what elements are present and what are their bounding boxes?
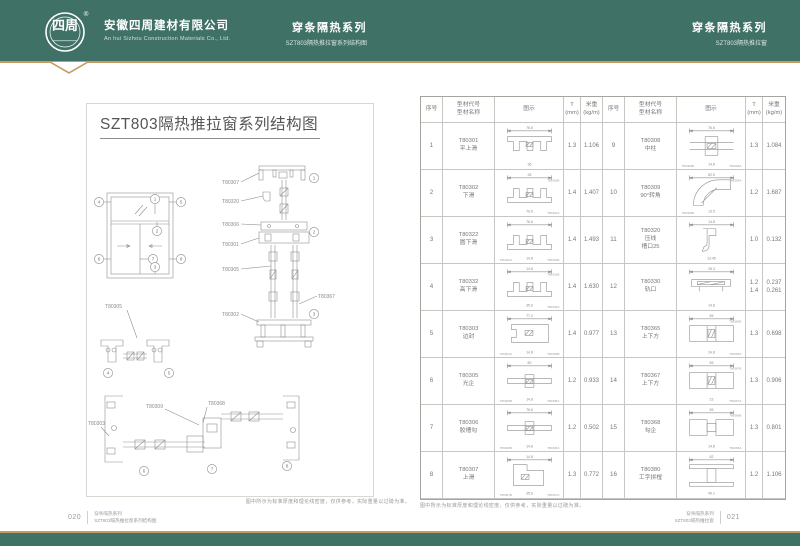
profile-code: T80305 (459, 373, 479, 381)
svg-text:T80302B: T80302B (547, 179, 559, 183)
svg-text:T80308A: T80308A (729, 164, 741, 168)
profile-name: 平上滑 (460, 146, 477, 154)
weight-cell: 0.906 (763, 358, 785, 405)
profile-label: T80307 (222, 180, 239, 186)
seq-cell: 10 (603, 170, 625, 217)
footer-caption-right: 穿条隔热系列 SZT803隔热推拉窗 (675, 511, 714, 525)
svg-text:T80303B: T80303B (547, 352, 559, 356)
svg-text:T80367A: T80367A (729, 399, 741, 403)
column-header: 型材代号 型材名称 (443, 97, 495, 123)
column-header: 序号 (603, 97, 625, 123)
svg-text:45.1: 45.1 (708, 492, 715, 496)
profile-label: T80305 (222, 267, 239, 273)
thickness-cell: 1.3 (564, 123, 581, 170)
profile-name: 上下方 (642, 334, 659, 342)
profile-code: T80380 (641, 467, 661, 475)
svg-text:35.6: 35.6 (526, 304, 533, 308)
gold-divider-top (0, 61, 800, 63)
svg-text:22: 22 (709, 398, 713, 402)
profile-code-name: T80367上下方 (625, 358, 677, 405)
thickness-cell: 1.0 (746, 217, 763, 264)
svg-text:14.8: 14.8 (526, 267, 533, 271)
header-notch-ornament (50, 62, 88, 75)
seq-cell: 6 (421, 358, 443, 405)
weight-cell: 1.084 (763, 123, 785, 170)
thickness-cell: 1.4 (564, 311, 581, 358)
profile-sketch: 77.214.8T80303AT80303B (495, 311, 564, 357)
thickness-cell: 1.3 (746, 358, 763, 405)
svg-text:65: 65 (709, 361, 713, 365)
sketch-cell: 28.314.8 (677, 264, 746, 311)
profile-label: T80309 (146, 404, 163, 410)
svg-text:77.2: 77.2 (526, 314, 533, 318)
profile-code: T80301 (459, 138, 479, 146)
column-header: 型材代号 型材名称 (625, 97, 677, 123)
seq-cell: 3 (421, 217, 443, 264)
svg-text:T80367B: T80367B (729, 367, 741, 371)
profile-code-name: T80380工字拼樘 (625, 452, 677, 499)
svg-text:35.6: 35.6 (526, 492, 533, 496)
section-marker: 6 (139, 466, 148, 475)
svg-text:65: 65 (709, 314, 713, 318)
profile-label: T80302 (222, 312, 239, 318)
svg-text:T80302A: T80302A (547, 211, 559, 215)
svg-text:55: 55 (709, 408, 713, 412)
profile-code-name: T8030990°转角 (625, 170, 677, 217)
svg-text:76.6: 76.6 (708, 126, 715, 130)
profile-name: 工字拼樘 (639, 475, 662, 483)
disclaimer-note-right: 图中所示为标准厚度和理论线密度，仅供参考，实际重量以过磅为准。 (420, 502, 584, 509)
section-marker: 3 (150, 262, 159, 274)
sketch-cell: 82.513.5T80309AT80309B (677, 170, 746, 217)
profile-code: T80368 (641, 420, 661, 428)
seq-cell: 14 (603, 358, 625, 405)
profile-sketch: 8245.1 (677, 452, 746, 498)
section-marker: 2 (309, 227, 318, 236)
thickness-cell: 1.3 (746, 123, 763, 170)
profile-code-name: T80365上下方 (625, 311, 677, 358)
svg-text:24.8: 24.8 (708, 351, 715, 355)
section-marker: 1 (309, 173, 318, 182)
header-band: 四周 ——— ® 安徽四周建材有限公司 An hui Sizhou Constr… (0, 0, 800, 61)
section-marker: 5 (169, 197, 186, 206)
profile-code: T80320 (641, 228, 661, 236)
svg-text:14.8: 14.8 (708, 304, 715, 308)
svg-text:T80365B: T80365B (729, 320, 741, 324)
svg-text:T80332A: T80332A (547, 305, 559, 309)
logo-text: 四周 (52, 18, 78, 33)
elevation-view: 4 1 5 2 6 7 8 3 (94, 193, 185, 278)
sketch-cell: 14.835.6T80307BT80307A (495, 452, 564, 499)
sketch-cell: 5514.8T80368BT80368A (677, 405, 746, 452)
svg-text:T80306B: T80306B (499, 446, 511, 450)
profile-sketch: 6524.8T80365BT80365A (677, 311, 746, 357)
footer-caption-left: 穿条隔热系列 SZT803隔热推拉窗系列结构图 (94, 511, 156, 525)
company-logo-icon: 四周 ——— ® (42, 6, 92, 56)
thickness-cell: 1.4 (564, 170, 581, 217)
series-subtitle: SZT803隔热推拉窗 (692, 38, 767, 47)
profile-code-name: T80368勾企 (625, 405, 677, 452)
svg-text:T80303A: T80303A (499, 352, 511, 356)
profile-code: T80309 (641, 185, 661, 193)
sketch-cell: 76.614.8T80308BT80308A (677, 123, 746, 170)
header-series-right-page: 穿条隔热系列 SZT803隔热推拉窗 (692, 19, 767, 47)
profile-code: T80308 (641, 138, 661, 146)
profile-sketch: 82.513.5T80309AT80309B (677, 170, 746, 216)
profile-label: T80303 (88, 421, 105, 427)
footer-series: 穿条隔热系列 (675, 511, 714, 518)
page-number-left: 020 (68, 514, 81, 521)
column-header: 米重 (kg/m) (581, 97, 603, 123)
structure-diagram-panel: SZT803隔热推拉窗系列结构图 4 1 5 2 6 7 8 3 (86, 103, 374, 497)
profile-sketch: 76.614.8T80308BT80308A (677, 123, 746, 169)
page-title: SZT803隔热推拉窗系列结构图 (100, 112, 320, 139)
section-marker: 6 (94, 254, 111, 263)
profile-code-name: T80305光企 (443, 358, 495, 405)
section-marker: 4 (103, 368, 112, 377)
thickness-cell: 1.4 (564, 217, 581, 264)
section-marker: 5 (164, 368, 173, 377)
page-number-right: 021 (727, 514, 740, 521)
footer-divider (87, 511, 88, 524)
svg-text:T80305A: T80305A (547, 399, 559, 403)
weight-cell: 0.933 (581, 358, 603, 405)
registered-mark: ® (84, 10, 89, 18)
series-title: 穿条隔热系列 (286, 19, 367, 35)
thickness-cell: 1.3 (746, 311, 763, 358)
footer-right: 穿条隔热系列 SZT803隔热推拉窗 021 (675, 511, 741, 525)
logo-ornament: ——— (53, 36, 77, 45)
profile-code-name: T80306胶槽勾 (443, 405, 495, 452)
svg-text:76.6: 76.6 (526, 408, 533, 412)
profile-name: 胶槽勾 (460, 428, 477, 436)
svg-text:T80332B: T80332B (547, 273, 559, 277)
seq-cell: 12 (603, 264, 625, 311)
svg-text:14.8: 14.8 (526, 455, 533, 459)
column-header: 米重 (kg/m) (763, 97, 785, 123)
svg-text:T80308B: T80308B (681, 164, 693, 168)
seq-cell: 16 (603, 452, 625, 499)
profile-sketch: 2870.6T80302BT80302A (495, 170, 564, 216)
profile-label: T80306 (222, 222, 239, 228)
svg-text:76.6: 76.6 (526, 220, 533, 224)
svg-text:2: 2 (156, 229, 159, 234)
sketch-cell: 14.813.45 (677, 217, 746, 264)
svg-text:8: 8 (180, 257, 183, 262)
svg-text:T80305B: T80305B (499, 399, 511, 403)
seq-cell: 2 (421, 170, 443, 217)
column-header: 图示 (495, 97, 564, 123)
column-header: T (mm) (746, 97, 763, 123)
company-name-en: An hui Sizhou Construction Materials Co.… (104, 36, 230, 42)
svg-text:80: 80 (527, 361, 531, 365)
profile-code-name: T80330轨口 (625, 264, 677, 311)
weight-cell: 0.237 0.261 (763, 264, 785, 311)
weight-cell: 1.493 (581, 217, 603, 264)
weight-cell: 0.977 (581, 311, 603, 358)
svg-text:1: 1 (313, 176, 316, 181)
footer-band (0, 533, 800, 546)
svg-text:3: 3 (313, 312, 316, 317)
svg-text:T80368B: T80368B (729, 414, 741, 418)
profile-name: 高下滑 (460, 287, 477, 295)
profile-code-name: T80303边封 (443, 311, 495, 358)
profile-sketch: 28.314.8 (677, 264, 746, 310)
profile-label: T80305 (105, 304, 122, 310)
svg-text:6: 6 (143, 469, 146, 474)
svg-text:T80322B: T80322B (547, 258, 559, 262)
profile-name: 压线 槽口25 (641, 236, 659, 252)
seq-cell: 8 (421, 452, 443, 499)
disclaimer-note-left: 图中所示为标准厚度和理论线密度，仅供参考，实际重量以过磅为准。 (86, 498, 410, 505)
profile-code: T80332 (459, 279, 479, 287)
profile-sketch: 14.835.6T80332BT80332A (495, 264, 564, 310)
weight-cell: 0.132 (763, 217, 785, 264)
profile-code: T80322 (459, 232, 479, 240)
profile-code: T80330 (641, 279, 661, 287)
structure-diagram: 4 1 5 2 6 7 8 3 (87, 142, 373, 494)
svg-text:7: 7 (211, 467, 214, 472)
svg-text:5: 5 (180, 200, 183, 205)
seq-cell: 13 (603, 311, 625, 358)
svg-text:70.6: 70.6 (526, 210, 533, 214)
svg-text:8: 8 (286, 464, 289, 469)
profile-name: 下滑 (463, 193, 475, 201)
svg-text:4: 4 (98, 200, 101, 205)
thickness-cell: 1.2 (746, 452, 763, 499)
weight-cell: 0.801 (763, 405, 785, 452)
weight-cell: 1.687 (763, 170, 785, 217)
profile-label: T80301 (222, 242, 239, 248)
seq-cell: 4 (421, 264, 443, 311)
svg-text:T80307B: T80307B (499, 493, 511, 497)
thickness-cell: 1.2 (746, 170, 763, 217)
company-name: 安徽四周建材有限公司 (104, 17, 230, 33)
footer-subtitle: SZT803隔热推拉窗 (675, 518, 714, 525)
horizontal-section-a: T80305 4 5 (101, 304, 174, 378)
thickness-cell: 1.2 1.4 (746, 264, 763, 311)
profile-sketch: 14.835.6T80307BT80307A (495, 452, 564, 498)
series-title: 穿条隔热系列 (692, 19, 767, 35)
svg-text:14.8: 14.8 (708, 163, 715, 167)
profile-label: T80367 (318, 294, 335, 300)
svg-text:4: 4 (107, 371, 110, 376)
svg-text:5: 5 (168, 371, 171, 376)
weight-cell: 1.630 (581, 264, 603, 311)
section-marker: 8 (169, 254, 186, 263)
profile-name: 边封 (463, 334, 475, 342)
weight-cell: 1.407 (581, 170, 603, 217)
svg-text:14.8: 14.8 (526, 351, 533, 355)
svg-text:T80368A: T80368A (729, 446, 741, 450)
svg-text:3: 3 (154, 265, 157, 270)
sketch-cell: 6522T80367BT80367A (677, 358, 746, 405)
svg-text:82.5: 82.5 (708, 173, 715, 177)
svg-text:14.8: 14.8 (526, 398, 533, 402)
seq-cell: 1 (421, 123, 443, 170)
weight-cell: 0.772 (581, 452, 603, 499)
profile-code-name: T80332高下滑 (443, 264, 495, 311)
svg-text:13.45: 13.45 (707, 257, 716, 261)
seq-cell: 7 (421, 405, 443, 452)
section-marker: 4 (94, 197, 111, 206)
svg-text:T80309A: T80309A (729, 179, 741, 183)
profile-code-name: T80307上滑 (443, 452, 495, 499)
column-header: 图示 (677, 97, 746, 123)
profile-sketch: 8014.8T80305BT80305A (495, 358, 564, 404)
vertical-section: T80307 T80320 T80306 T80301 T80305 T8030… (222, 166, 335, 347)
svg-text:1: 1 (154, 197, 157, 202)
thickness-cell: 1.3 (746, 405, 763, 452)
profile-name: 中柱 (645, 146, 657, 154)
sketch-cell: 2870.6T80302BT80302A (495, 170, 564, 217)
thickness-cell: 1.3 (564, 452, 581, 499)
sketch-cell: 14.835.6T80332BT80332A (495, 264, 564, 311)
svg-text:T80365A: T80365A (729, 352, 741, 356)
svg-text:T80306A: T80306A (547, 446, 559, 450)
seq-cell: 9 (603, 123, 625, 170)
header-series-left-page: 穿条隔热系列 SZT803隔热推拉窗系列结构图 (286, 19, 367, 47)
profile-code-name: T80301平上滑 (443, 123, 495, 170)
weight-cell: 0.698 (763, 311, 785, 358)
seq-cell: 5 (421, 311, 443, 358)
section-marker: 1 (150, 194, 159, 214)
thickness-cell: 1.2 (564, 405, 581, 452)
profile-code: T80367 (641, 373, 661, 381)
profile-name: 上滑 (463, 475, 475, 483)
sketch-cell: 76.614.8T80306BT80306A (495, 405, 564, 452)
footer-left: 020 穿条隔热系列 SZT803隔热推拉窗系列结构图 (68, 511, 156, 525)
profile-sketch: 76.636 (495, 123, 564, 169)
column-header: T (mm) (564, 97, 581, 123)
svg-text:14.8: 14.8 (526, 445, 533, 449)
profile-code: T80365 (641, 326, 661, 334)
svg-text:T80309B: T80309B (681, 211, 693, 215)
series-subtitle: SZT803隔热推拉窗系列结构图 (286, 38, 367, 47)
profile-code-name: T80320压线 槽口25 (625, 217, 677, 264)
svg-text:13.5: 13.5 (708, 210, 715, 214)
section-marker: 7 (207, 464, 216, 473)
section-marker: 3 (309, 309, 318, 318)
profile-sketch: 6522T80367BT80367A (677, 358, 746, 404)
footer-divider (720, 511, 721, 524)
sketch-cell: 6524.8T80365BT80365A (677, 311, 746, 358)
footer-subtitle: SZT803隔热推拉窗系列结构图 (94, 518, 156, 525)
svg-text:76.6: 76.6 (526, 126, 533, 130)
profile-sketch: 76.614.8T80306BT80306A (495, 405, 564, 451)
thickness-cell: 1.2 (564, 358, 581, 405)
svg-text:28: 28 (527, 173, 531, 177)
sketch-cell: 76.636 (495, 123, 564, 170)
sketch-cell: 76.614.8T80322AT80322B (495, 217, 564, 264)
profile-code: T80302 (459, 185, 479, 193)
svg-text:2: 2 (313, 230, 316, 235)
sketch-cell: 8014.8T80305BT80305A (495, 358, 564, 405)
seq-cell: 11 (603, 217, 625, 264)
profile-code-name: T80308中柱 (625, 123, 677, 170)
svg-text:82: 82 (709, 455, 713, 459)
profile-name: 圆下滑 (460, 240, 477, 248)
profile-name: 轨口 (645, 287, 657, 295)
profile-code: T80306 (459, 420, 479, 428)
profile-sketch: 5514.8T80368BT80368A (677, 405, 746, 451)
thickness-cell: 1.4 (564, 264, 581, 311)
profile-label: T80368 (208, 401, 225, 407)
section-marker: 8 (282, 461, 291, 470)
weight-cell: 0.502 (581, 405, 603, 452)
svg-text:36: 36 (527, 163, 531, 167)
profile-name: 90°转角 (640, 193, 660, 201)
svg-text:14.8: 14.8 (708, 220, 715, 224)
horizontal-section-b: T80303 T80309 T80368 6 (88, 396, 299, 476)
svg-text:6: 6 (98, 257, 101, 262)
svg-text:T80307A: T80307A (547, 493, 559, 497)
svg-text:T80322A: T80322A (499, 258, 511, 262)
weight-cell: 1.106 (581, 123, 603, 170)
sketch-cell: 8245.1 (677, 452, 746, 499)
profile-name: 上下方 (642, 381, 659, 389)
profile-sketch: 76.614.8T80322AT80322B (495, 217, 564, 263)
column-header: 序号 (421, 97, 443, 123)
weight-cell: 1.106 (763, 452, 785, 499)
profile-label: T80320 (222, 199, 239, 205)
seq-cell: 15 (603, 405, 625, 452)
profile-code: T80303 (459, 326, 479, 334)
svg-text:28.3: 28.3 (708, 267, 715, 271)
svg-text:7: 7 (152, 257, 155, 262)
profile-sketch: 14.813.45 (677, 217, 746, 263)
spec-table: 序号型材代号 型材名称图示T (mm)米重 (kg/m)序号型材代号 型材名称图… (420, 96, 786, 500)
profile-code: T80307 (459, 467, 479, 475)
svg-text:14.8: 14.8 (526, 257, 533, 261)
profile-name: 光企 (463, 381, 475, 389)
svg-text:14.8: 14.8 (708, 445, 715, 449)
profile-code-name: T80302下滑 (443, 170, 495, 217)
footer-series: 穿条隔热系列 (94, 511, 156, 518)
profile-code-name: T80322圆下滑 (443, 217, 495, 264)
sketch-cell: 77.214.8T80303AT80303B (495, 311, 564, 358)
profile-name: 勾企 (645, 428, 657, 436)
company-block: 安徽四周建材有限公司 An hui Sizhou Construction Ma… (104, 17, 230, 42)
